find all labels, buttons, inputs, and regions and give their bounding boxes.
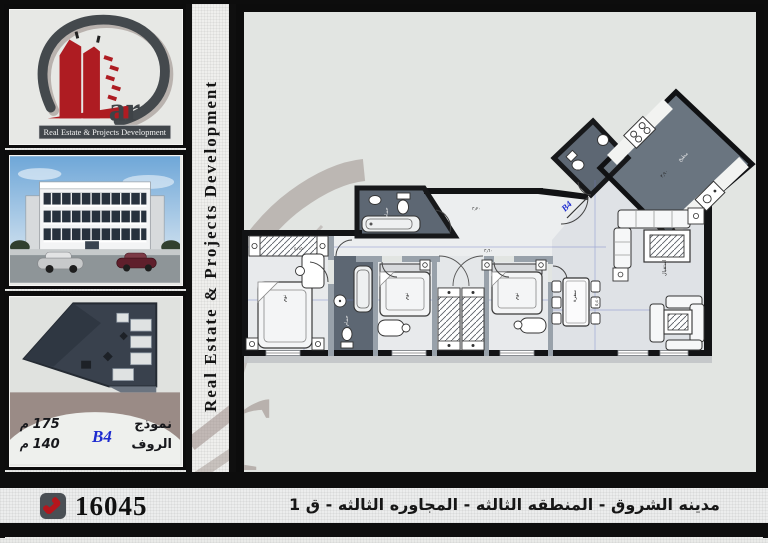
room-label: نوم: [404, 293, 410, 300]
logo-panel: ar Real Estate & Projects Development: [4, 4, 186, 148]
model-code: B4: [92, 427, 112, 447]
siteplan-panel: نموذج 175 م الروف 140 م B4: [4, 291, 186, 470]
logo-banner-text: Real Estate & Projects Development: [44, 128, 167, 137]
side-brand-text: Real Estate & Projects Development: [201, 80, 221, 412]
room-label: حمام: [384, 207, 390, 218]
roof-area: 140 م: [20, 435, 60, 455]
dim-label: ٤٫١٥: [294, 247, 303, 252]
roof-label: الروف: [131, 435, 172, 455]
dim-label: ٥٫٤٠: [595, 297, 600, 306]
building-rendering: [10, 156, 180, 283]
brochure-page: ar Real Estate & Projects Development: [0, 0, 768, 543]
photo-panel: [4, 150, 186, 289]
model-label: نموذج: [134, 415, 172, 435]
sidewalk: [10, 249, 180, 255]
wall-shadow: [244, 356, 712, 363]
project-address: مدينه الشروق - المنطقه الثالثه - المجاور…: [255, 488, 754, 523]
phone-block: 16045: [40, 490, 148, 522]
room-label: نوم: [282, 295, 288, 302]
room-label: نوم: [514, 293, 520, 300]
room-label: سفرة: [572, 290, 578, 302]
room-label: استقبال: [662, 260, 668, 276]
side-brand-strip: Real Estate & Projects Development: [186, 4, 236, 488]
model-area: 175 م: [20, 415, 60, 435]
floorplan-panel: ar: [236, 4, 764, 488]
model-info: نموذج 175 م الروف 140 م B4: [20, 415, 172, 461]
phone-icon: [40, 493, 66, 519]
divider-band-top: [0, 472, 768, 488]
divider-band-bottom: [0, 523, 768, 537]
room-label: حمام: [344, 315, 350, 326]
logo-suffix-text: ar: [109, 91, 141, 128]
floorplan: ar: [236, 4, 764, 488]
cloud: [18, 168, 61, 180]
dim-label: ٣٫٢٠: [472, 206, 481, 212]
dim-label: ٣٫٦٠: [484, 248, 493, 254]
phone-number: 16045: [75, 491, 148, 522]
company-logo: ar Real Estate & Projects Development: [10, 10, 180, 142]
